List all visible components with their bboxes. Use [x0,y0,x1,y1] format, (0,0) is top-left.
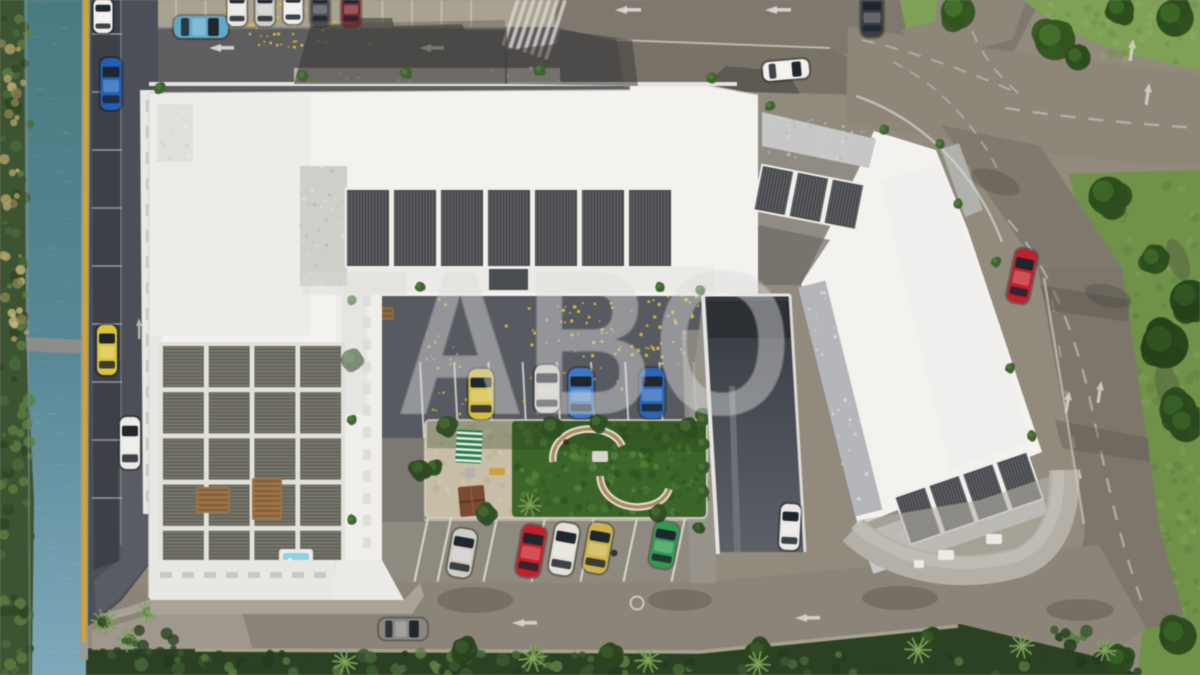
svg-text:TABO: TABO [300,228,792,458]
